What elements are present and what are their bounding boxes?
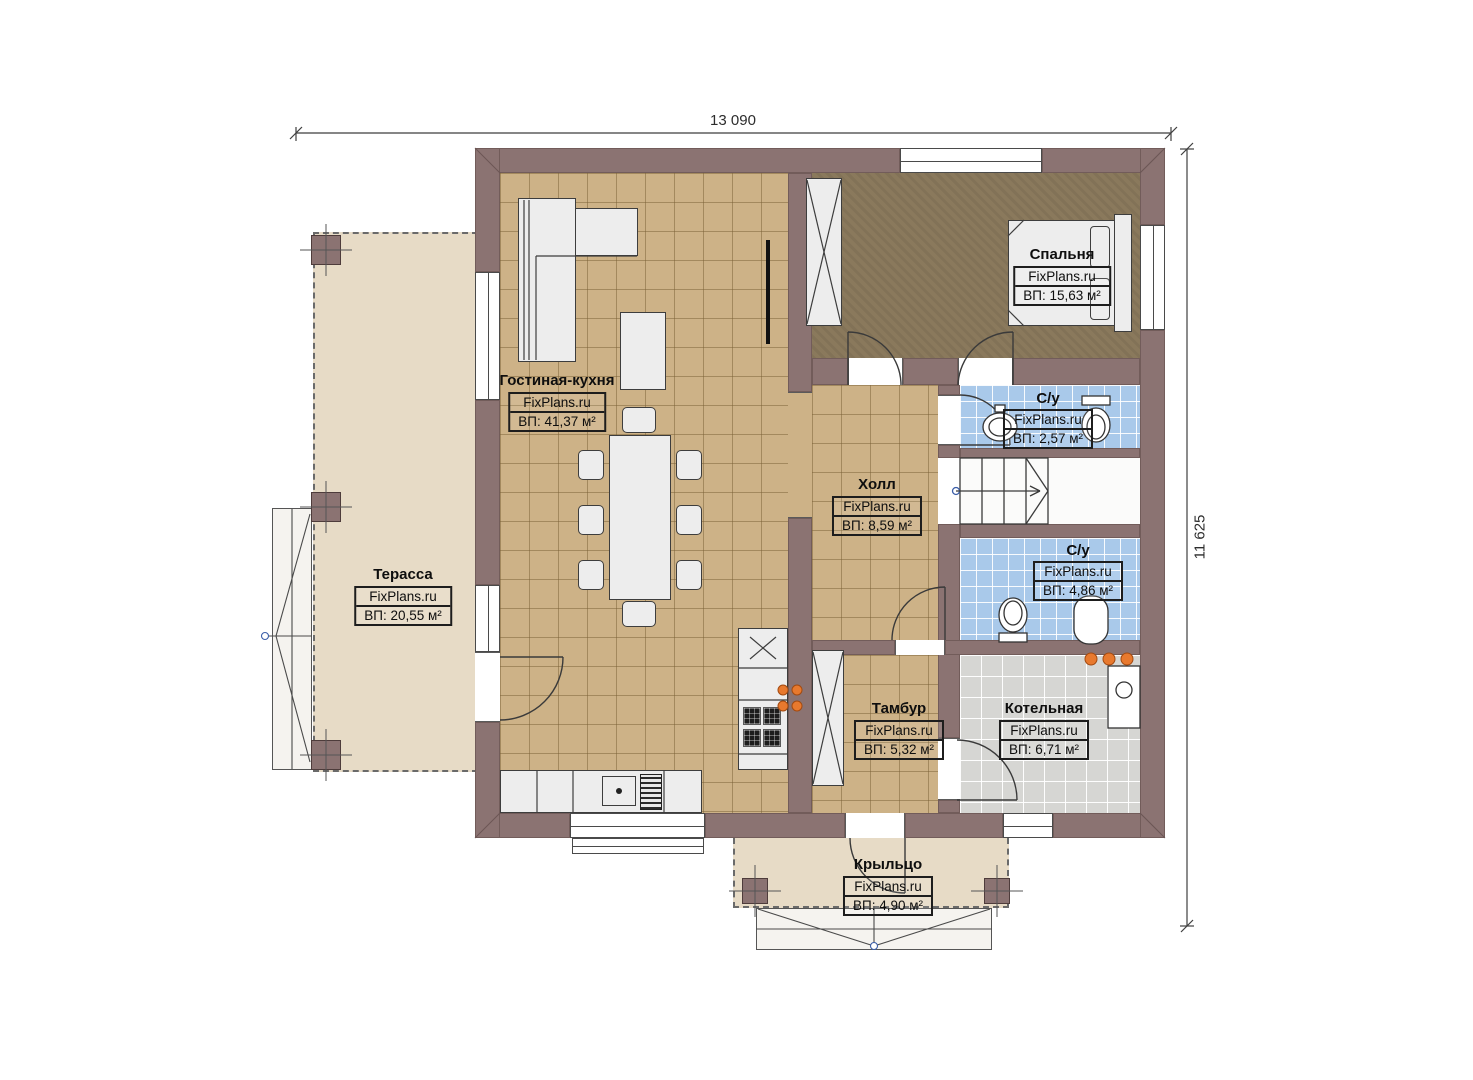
window xyxy=(570,813,705,838)
watermark: FixPlans.ru xyxy=(1005,411,1091,428)
room-label-boiler: Котельная xyxy=(1005,700,1084,717)
wall xyxy=(938,524,960,738)
door-opening-hall-tambour xyxy=(895,640,945,655)
watermark: FixPlans.ru xyxy=(834,498,920,515)
room-infobox-hall: FixPlans.ru ВП: 8,59 м² xyxy=(832,496,922,536)
wall xyxy=(905,813,1003,838)
wall xyxy=(705,813,845,838)
room-area: ВП: 2,57 м² xyxy=(1005,428,1091,447)
wall xyxy=(475,148,500,272)
wall xyxy=(812,358,848,385)
door-opening-bedroom-2 xyxy=(958,358,1013,385)
watermark: FixPlans.ru xyxy=(1035,563,1121,580)
room-area: ВП: 6,71 м² xyxy=(1001,739,1087,758)
chair xyxy=(676,450,702,480)
stove-burner xyxy=(744,730,760,746)
room-infobox-wc-bottom: FixPlans.ru ВП: 4,86 м² xyxy=(1033,561,1123,601)
kitchen-sink xyxy=(602,776,636,806)
room-label-hall: Холл xyxy=(858,476,896,493)
wall xyxy=(938,445,960,458)
room-area: ВП: 4,86 м² xyxy=(1035,580,1121,599)
room-area: ВП: 8,59 м² xyxy=(834,515,920,534)
chair xyxy=(578,560,604,590)
passage-living-hall xyxy=(788,392,812,518)
terrace-post xyxy=(311,492,341,522)
floor-plan: 13 090 11 625 Гостиная-кухня FixPlans.ru… xyxy=(0,0,1473,1080)
wall xyxy=(960,524,1140,538)
room-infobox-living-kitchen: FixPlans.ru ВП: 41,37 м² xyxy=(508,392,606,432)
terrace-post xyxy=(311,740,341,770)
wall xyxy=(475,148,900,173)
closet xyxy=(812,650,844,786)
watermark: FixPlans.ru xyxy=(510,394,604,411)
room-label-bedroom: Спальня xyxy=(1030,246,1095,263)
room-label-wc-bottom: С/у xyxy=(1066,542,1089,559)
coffee-table xyxy=(620,312,666,390)
window xyxy=(1140,225,1165,330)
wall xyxy=(475,400,500,585)
chair xyxy=(622,601,656,627)
watermark: FixPlans.ru xyxy=(1001,722,1087,739)
wall xyxy=(945,640,1140,655)
chair xyxy=(578,450,604,480)
room-area: ВП: 20,55 м² xyxy=(356,605,450,624)
watermark: FixPlans.ru xyxy=(845,878,931,895)
dining-table xyxy=(609,435,671,600)
window-sill xyxy=(572,838,704,854)
room-area: ВП: 41,37 м² xyxy=(510,411,604,430)
chair xyxy=(622,407,656,433)
stair-landing-floor xyxy=(960,458,1140,524)
room-infobox-porch: FixPlans.ru ВП: 4,90 м² xyxy=(843,876,933,916)
sofa xyxy=(518,198,576,362)
porch-post xyxy=(984,878,1010,904)
chair xyxy=(578,505,604,535)
room-infobox-tambour: FixPlans.ru ВП: 5,32 м² xyxy=(854,720,944,760)
wall xyxy=(1140,330,1165,838)
room-label-living-kitchen: Гостиная-кухня xyxy=(500,372,615,389)
room-infobox-boiler: FixPlans.ru ВП: 6,71 м² xyxy=(999,720,1089,760)
room-infobox-terrace: FixPlans.ru ВП: 20,55 м² xyxy=(354,586,452,626)
room-area: ВП: 15,63 м² xyxy=(1015,285,1109,304)
door-opening-wc-top xyxy=(938,395,960,445)
wall xyxy=(960,448,1140,458)
watermark: FixPlans.ru xyxy=(1015,268,1109,285)
wall xyxy=(938,800,960,813)
room-label-wc-top: С/у xyxy=(1036,390,1059,407)
door-opening-bedroom-1 xyxy=(848,358,903,385)
room-area: ВП: 4,90 м² xyxy=(845,895,931,914)
chair xyxy=(676,560,702,590)
window xyxy=(1003,813,1053,838)
chair xyxy=(676,505,702,535)
wardrobe xyxy=(806,178,842,326)
dimension-width-label: 13 090 xyxy=(710,112,756,129)
wall xyxy=(1140,148,1165,225)
dimension-height-label: 11 625 xyxy=(1192,515,1209,560)
wall xyxy=(788,518,812,813)
room-label-tambour: Тамбур xyxy=(872,700,926,717)
porch-post xyxy=(742,878,768,904)
kitchen-counter xyxy=(500,770,702,813)
stove-burner xyxy=(764,708,780,724)
watermark: FixPlans.ru xyxy=(356,588,450,605)
window xyxy=(475,272,500,400)
tv xyxy=(766,240,770,344)
terrace-post xyxy=(311,235,341,265)
wall xyxy=(938,385,960,395)
window xyxy=(475,585,500,652)
stove-burner xyxy=(744,708,760,724)
terrace-steps xyxy=(272,508,312,770)
wall xyxy=(1013,358,1140,385)
door-opening-terrace xyxy=(475,652,500,722)
dish-rack xyxy=(640,774,662,810)
wall xyxy=(903,358,958,385)
bed-headboard xyxy=(1114,214,1132,332)
room-area: ВП: 5,32 м² xyxy=(856,739,942,758)
door-opening-entrance xyxy=(845,813,905,838)
room-infobox-wc-top: FixPlans.ru ВП: 2,57 м² xyxy=(1003,409,1093,449)
room-label-terrace: Терасса xyxy=(373,566,432,583)
room-infobox-bedroom: FixPlans.ru ВП: 15,63 м² xyxy=(1013,266,1111,306)
watermark: FixPlans.ru xyxy=(856,722,942,739)
wall xyxy=(475,722,500,838)
kitchen-counter xyxy=(738,628,788,770)
stove-burner xyxy=(764,730,780,746)
room-label-porch: Крыльцо xyxy=(854,856,922,873)
window xyxy=(900,148,1042,173)
